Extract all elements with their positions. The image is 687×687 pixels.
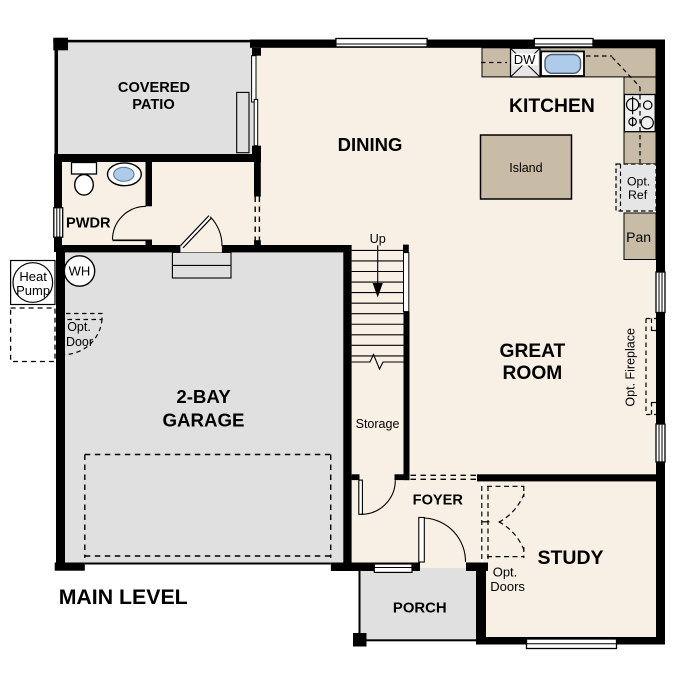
svg-text:Heat: Heat	[19, 269, 47, 284]
svg-text:WH: WH	[69, 264, 91, 279]
svg-text:PATIO: PATIO	[132, 97, 174, 113]
svg-text:Opt. Fireplace: Opt. Fireplace	[623, 328, 637, 407]
svg-text:Opt.: Opt.	[67, 320, 91, 334]
svg-text:Pan: Pan	[626, 229, 651, 245]
svg-text:Storage: Storage	[356, 417, 400, 431]
svg-text:Opt.: Opt.	[493, 565, 518, 580]
svg-text:ROOM: ROOM	[503, 363, 563, 384]
svg-text:PORCH: PORCH	[393, 601, 447, 617]
svg-text:Ref: Ref	[628, 188, 648, 202]
svg-text:Doors: Doors	[490, 579, 525, 594]
svg-text:MAIN LEVEL: MAIN LEVEL	[59, 585, 188, 609]
svg-text:2-BAY: 2-BAY	[176, 386, 231, 407]
svg-text:Up: Up	[370, 232, 386, 246]
svg-text:GREAT: GREAT	[500, 341, 566, 362]
svg-text:GARAGE: GARAGE	[162, 409, 244, 430]
svg-text:DINING: DINING	[338, 134, 403, 155]
svg-text:PWDR: PWDR	[66, 215, 111, 231]
svg-text:FOYER: FOYER	[413, 493, 464, 509]
svg-text:Door: Door	[66, 335, 93, 349]
svg-text:Opt.: Opt.	[627, 175, 650, 189]
svg-text:DW: DW	[514, 52, 536, 67]
svg-text:Island: Island	[509, 161, 542, 175]
svg-text:KITCHEN: KITCHEN	[509, 96, 595, 117]
svg-text:COVERED: COVERED	[118, 80, 190, 96]
svg-text:Pump: Pump	[16, 283, 50, 298]
svg-text:STUDY: STUDY	[537, 547, 603, 569]
